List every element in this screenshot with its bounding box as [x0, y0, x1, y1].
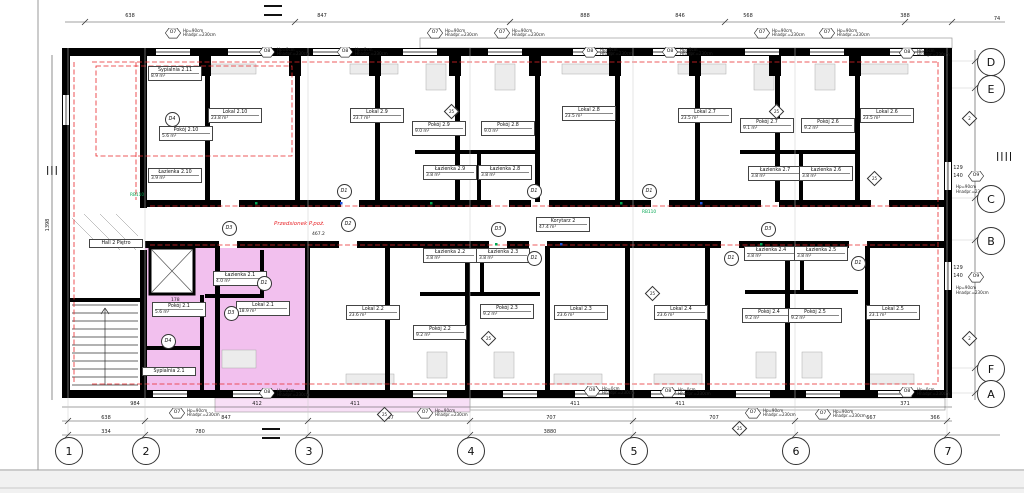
room-label: Lokal 2.423.6 m² [654, 305, 708, 320]
room-area: 9.0 m² [415, 128, 463, 135]
dimension-label: 411 [350, 401, 360, 407]
room-name: Lokal 2.7 [694, 110, 716, 115]
door-marker: D1 [642, 184, 657, 199]
room-area: 8.9 m² [151, 73, 199, 80]
vent-marker: 25 [443, 103, 459, 119]
room-name: Łazienka 2.10 [158, 170, 191, 175]
dimension-label: 707 [709, 415, 719, 421]
window-note: Hp=0cmHnadpr.=230cm [602, 387, 635, 396]
room-name: Pokój 2.2 [429, 327, 451, 332]
door-marker: D3 [224, 306, 239, 321]
room-label: Pokój 2.69.2 m² [801, 118, 855, 133]
room-label: Pokój 2.59.2 m² [788, 308, 842, 323]
dimension-label: 847 [317, 13, 327, 19]
survey-point-label: RB110 [130, 193, 144, 198]
vent-marker: 25 [480, 330, 496, 346]
window-note: Hp=90cmHnadpr.=230cm [512, 29, 545, 38]
fire-vestibule-label: Przedsionek P.poż. [274, 221, 325, 227]
survey-point-label: RB110 [642, 210, 656, 215]
window-note: Hp=90cmHnadpr.=230cm [435, 409, 468, 418]
room-area: 23.6 m² [557, 312, 605, 319]
room-name: Lokal 2.2 [362, 307, 384, 312]
room-area: 3.8 m² [797, 253, 845, 260]
vent-marker: 25 [866, 170, 882, 186]
room-name: Łazienka 2.5 [806, 248, 836, 253]
window-note: Hp=0cmHnadpr.=230cm [600, 48, 633, 57]
door-marker: D1 [527, 251, 542, 266]
room-area: 3.8 m² [479, 255, 527, 262]
room-name: Lokal 2.6 [876, 110, 898, 115]
room-area: 5.6 m² [162, 133, 210, 140]
room-label: Lokal 2.823.5 m² [562, 106, 616, 121]
room-name: Lokal 2.10 [223, 110, 248, 115]
door-marker: D1 [337, 184, 352, 199]
dimension-label: 707 [546, 415, 556, 421]
room-name: Sypialnia 2.11 [158, 68, 192, 73]
room-name: Lokal 2.8 [578, 108, 600, 113]
grid-bubble-column: 6 [782, 437, 810, 465]
door-marker: D1 [851, 256, 866, 271]
vent-marker: 2 [961, 110, 977, 126]
room-area: 18.9 m² [239, 308, 287, 315]
grid-bubble-row: D [977, 48, 1005, 76]
dimension-label: 846 [675, 13, 685, 19]
dimension-label: 847 [221, 415, 231, 421]
room-name: Łazienka 2.6 [811, 168, 841, 173]
window-note: Hp=0cmHnadpr.=230cm [917, 388, 950, 397]
room-area: 3.8 m² [481, 172, 529, 179]
window-marker: O7 [745, 408, 761, 419]
window-marker: O8 [662, 47, 678, 58]
dimension-label: 334 [101, 429, 111, 435]
dimension-label: 780 [195, 429, 205, 435]
room-name: Łazienka 2.4 [756, 248, 786, 253]
window-marker: O7 [417, 408, 433, 419]
room-area: 23.5 m² [565, 113, 613, 120]
vent-marker: 25 [731, 420, 747, 436]
room-area: 9.1 m² [743, 125, 791, 132]
window-note: Hp=0cmHnadpr.=230cm [917, 49, 950, 58]
grid-bubble-column: 4 [457, 437, 485, 465]
window-marker: O8 [584, 386, 600, 397]
room-area: 23.1 m² [869, 312, 917, 319]
room-name: Pokój 2.5 [804, 310, 826, 315]
room-label: Pokój 2.29.2 m² [413, 325, 467, 340]
window-note: Hp=0cmHnadpr.=230cm [277, 389, 310, 398]
room-area: 9.2 m² [483, 311, 531, 318]
room-area: 23.6 m² [349, 312, 397, 319]
room-label: Hall 2 Piętro [89, 239, 143, 248]
door-marker: D1 [257, 276, 272, 291]
room-area: 3.9 m² [151, 175, 199, 182]
room-label: Korytarz 247.4 m² [536, 217, 590, 232]
dimension-label: 74 [994, 16, 1000, 22]
room-name: Hall 2 Piętro [101, 241, 130, 246]
door-marker: D3 [222, 221, 237, 236]
dimension-label: 638 [125, 13, 135, 19]
room-name: Korytarz 2 [551, 219, 576, 224]
vent-marker: 2 [961, 330, 977, 346]
section-mark-icon [262, 428, 280, 439]
room-name: Łazienka 2.7 [760, 168, 790, 173]
dimension-label: 638 [101, 415, 111, 421]
room-area: 3.8 m² [747, 253, 795, 260]
section-mark-icon: ||| [46, 166, 59, 176]
window-note: Hp=90cmHnadpr.=230cm [445, 29, 478, 38]
dimension-label: 129 [953, 265, 963, 271]
room-name: Pokój 2.3 [496, 306, 518, 311]
room-name: Lokal 2.1 [252, 303, 274, 308]
room-area: 3.8 m² [802, 173, 850, 180]
room-label: Lokal 2.923.7 m² [350, 108, 404, 123]
window-marker: O8 [899, 48, 915, 59]
room-name: Pokój 2.1 [168, 304, 190, 309]
room-label: Pokój 2.15.6 m² [152, 302, 206, 317]
dimension-label: 888 [580, 13, 590, 19]
dimension-label: 3880 [544, 429, 557, 435]
room-label: Łazienka 2.73.8 m² [748, 166, 802, 181]
room-area: 9.0 m² [484, 128, 532, 135]
misc-dimension: 178 [171, 298, 180, 303]
room-area: 23.6 m² [657, 312, 705, 319]
room-label: Pokój 2.89.0 m² [481, 121, 535, 136]
window-note: Hp=90cmHnadpr.=230cm [183, 29, 216, 38]
floor-plan: Sypialnia 2.118.9 m²Pokój 2.105.6 m²Łazi… [0, 0, 1024, 493]
room-label: Lokal 2.323.6 m² [554, 305, 608, 320]
room-label: Pokój 2.105.6 m² [159, 126, 213, 141]
room-name: Pokój 2.6 [817, 120, 839, 125]
room-name: Pokój 2.4 [758, 310, 780, 315]
window-note: Hp=90cmHnadpr.=230cm [763, 409, 796, 418]
dimension-label: 371 [900, 401, 910, 407]
room-label: Łazienka 2.43.8 m² [744, 246, 798, 261]
window-note: Hp=90cmHnadpr.=230cm [833, 410, 866, 419]
section-mark-icon: |||| [996, 152, 1013, 162]
window-marker: O7 [819, 28, 835, 39]
room-area: 5.6 m² [155, 309, 203, 316]
dimension-label: 667 [866, 415, 876, 421]
room-name: Lokal 2.9 [366, 110, 388, 115]
window-note: Hp=90cmHnadpr.=230cm [187, 409, 220, 418]
room-label: Lokal 2.223.6 m² [346, 305, 400, 320]
window-marker: O7 [815, 409, 831, 420]
room-area: 47.4 m² [539, 224, 587, 231]
door-marker: D4 [165, 112, 180, 127]
room-name: Pokój 2.8 [497, 123, 519, 128]
window-marker: O7 [494, 28, 510, 39]
dimension-label: 1398 [45, 219, 51, 232]
door-marker: D3 [491, 222, 506, 237]
dimension-label: 568 [743, 13, 753, 19]
window-marker: O8 [259, 47, 275, 58]
window-marker: O8 [337, 47, 353, 58]
room-label: Lokal 2.1023.8 m² [208, 108, 262, 123]
room-label: Pokój 2.79.1 m² [740, 118, 794, 133]
window-marker: O9 [968, 272, 984, 283]
room-name: Łazienka 2.3 [488, 250, 518, 255]
dimension-label: 411 [675, 401, 685, 407]
grid-bubble-column: 1 [55, 437, 83, 465]
room-area: 3.8 m² [426, 255, 474, 262]
room-name: Lokal 2.4 [670, 307, 692, 312]
room-name: Pokój 2.7 [756, 120, 778, 125]
room-label: Pokój 2.99.0 m² [412, 121, 466, 136]
window-marker: O7 [169, 408, 185, 419]
room-name: Łazienka 2.1 [225, 273, 255, 278]
window-marker: O8 [582, 47, 598, 58]
room-label: Pokój 2.39.2 m² [480, 304, 534, 319]
dimension-label: 412 [252, 401, 262, 407]
room-name: Łazienka 2.8 [490, 167, 520, 172]
room-name: Pokój 2.10 [174, 128, 199, 133]
dimension-label: 411 [570, 401, 580, 407]
room-label: Sypialnia 2.118.9 m² [148, 66, 202, 81]
window-marker: O9 [968, 171, 984, 182]
door-marker: D1 [724, 251, 739, 266]
room-label: Łazienka 2.83.8 m² [478, 165, 532, 180]
grid-bubble-row: E [977, 75, 1005, 103]
room-area: 23.8 m² [211, 115, 259, 122]
window-marker: O7 [165, 28, 181, 39]
grid-bubble-row: F [977, 355, 1005, 383]
room-name: Łazienka 2.9 [435, 167, 465, 172]
room-area: 23.7 m² [353, 115, 401, 122]
dimension-label: 366 [930, 415, 940, 421]
window-note: Hp=0cmHnadpr.=230cm [355, 48, 388, 57]
room-label: Lokal 2.118.9 m² [236, 301, 290, 316]
room-label: Lokal 2.623.5 m² [860, 108, 914, 123]
vent-marker: 25 [768, 103, 784, 119]
room-name: Pokój 2.9 [428, 123, 450, 128]
room-area: 9.2 m² [416, 332, 464, 339]
grid-bubble-column: 2 [132, 437, 160, 465]
vent-marker: 25 [644, 285, 660, 301]
door-marker: D2 [341, 217, 356, 232]
window-note: Hp=0cmHnadpr.=230cm [277, 48, 310, 57]
room-name: Sypialnia 2.1 [154, 369, 185, 374]
grid-bubble-column: 3 [295, 437, 323, 465]
grid-bubble-row: C [977, 185, 1005, 213]
window-marker: O7 [754, 28, 770, 39]
room-name: Lokal 2.3 [570, 307, 592, 312]
grid-bubble-column: 5 [620, 437, 648, 465]
grid-bubble-column: 7 [934, 437, 962, 465]
dimension-label: 129 [953, 165, 963, 171]
door-marker: D1 [527, 184, 542, 199]
room-label: Sypialnia 2.1 [142, 367, 196, 376]
room-label: Lokal 2.523.1 m² [866, 305, 920, 320]
room-area: 3.8 m² [751, 173, 799, 180]
door-marker: D3 [761, 222, 776, 237]
room-area: 23.5 m² [681, 115, 729, 122]
room-label: Lokal 2.723.5 m² [678, 108, 732, 123]
dimension-label: 140 [953, 273, 963, 279]
dimension-label: 140 [953, 173, 963, 179]
room-label: Łazienka 2.93.8 m² [423, 165, 477, 180]
room-label: Łazienka 2.103.9 m² [148, 168, 202, 183]
room-label: Łazienka 2.33.8 m² [476, 248, 530, 263]
room-area: 9.2 m² [791, 315, 839, 322]
grid-bubble-row: B [977, 227, 1005, 255]
room-name: Lokal 2.5 [882, 307, 904, 312]
annotation-layer: Sypialnia 2.118.9 m²Pokój 2.105.6 m²Łazi… [0, 0, 1024, 493]
room-label: Łazienka 2.23.8 m² [423, 248, 477, 263]
room-area: 9.2 m² [745, 315, 793, 322]
room-area: 9.2 m² [804, 125, 852, 132]
room-label: Łazienka 2.53.8 m² [794, 246, 848, 261]
window-note: Hp=0cmHnadpr.=230cm [678, 388, 711, 397]
window-marker: O8 [259, 388, 275, 399]
room-name: Łazienka 2.2 [435, 250, 465, 255]
dimension-label: 388 [900, 13, 910, 19]
window-marker: O8 [899, 387, 915, 398]
section-mark-icon [264, 5, 282, 16]
room-area: 3.8 m² [426, 172, 474, 179]
grid-bubble-row: A [977, 380, 1005, 408]
window-note: Hp=0cmHnadpr.=230cm [680, 48, 713, 57]
dimension-label: 984 [130, 401, 140, 407]
window-note: Hp=90cmHnadpr.=230cm [772, 29, 805, 38]
window-marker: O8 [660, 387, 676, 398]
room-label: Łazienka 2.63.8 m² [799, 166, 853, 181]
window-note: Hp=90cmHnadpr.=230cm [956, 286, 989, 295]
window-note: Hp=90cmHnadpr.=230cm [837, 29, 870, 38]
misc-dimension: 467.2 [312, 232, 325, 237]
door-marker: D4 [161, 334, 176, 349]
window-marker: O7 [427, 28, 443, 39]
room-area: 23.5 m² [863, 115, 911, 122]
